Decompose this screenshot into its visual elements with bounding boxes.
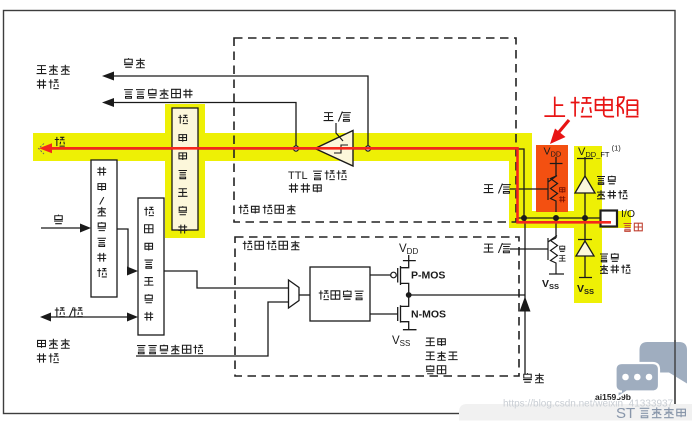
svg-text:N-MOS: N-MOS: [411, 309, 446, 321]
svg-text:P-MOS: P-MOS: [411, 270, 445, 282]
svg-text:I/O: I/O: [621, 208, 635, 220]
svg-text:ST: ST: [616, 405, 635, 422]
svg-text:TTL: TTL: [288, 170, 308, 182]
